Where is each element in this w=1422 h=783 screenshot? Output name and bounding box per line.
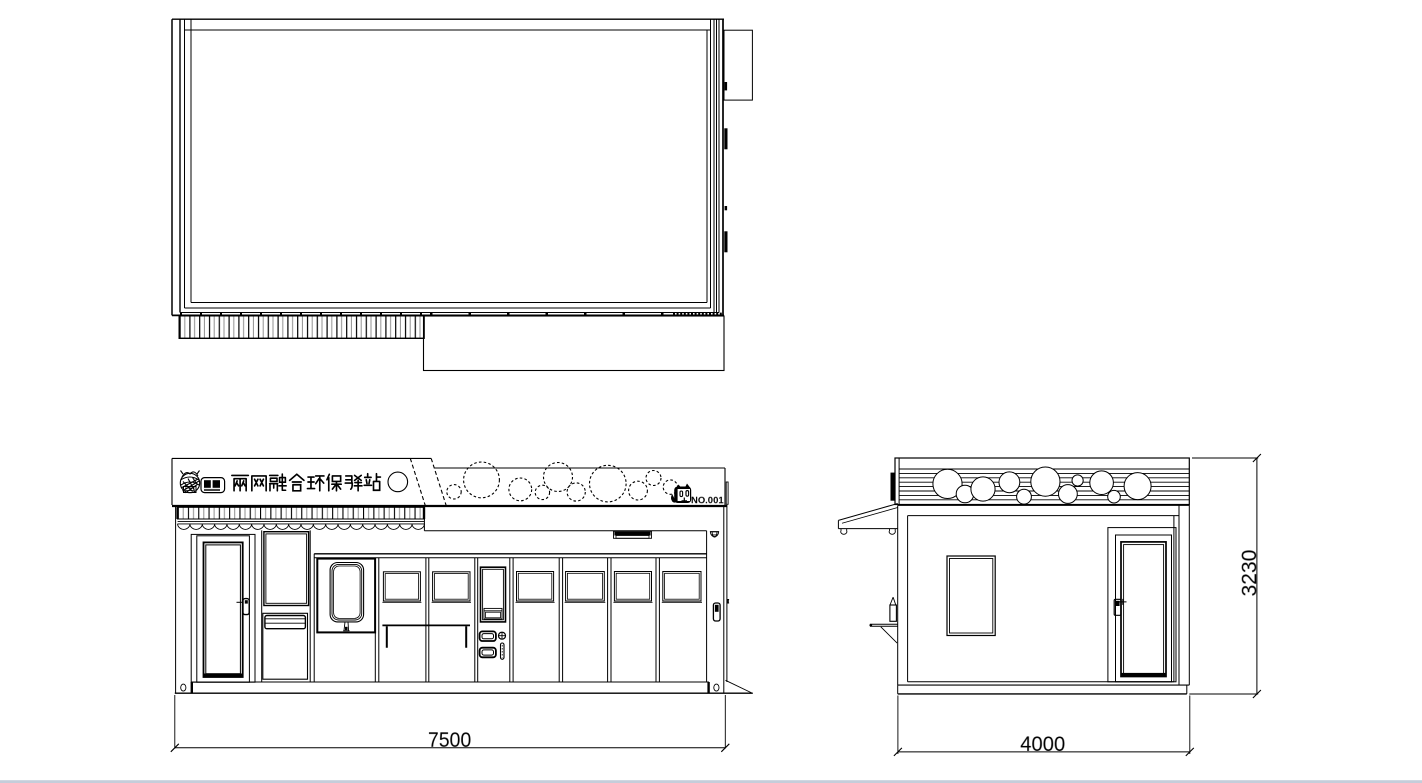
svg-text:3230: 3230 — [1237, 549, 1261, 596]
svg-text:NO.001: NO.001 — [691, 495, 724, 506]
svg-text:4000: 4000 — [1020, 732, 1065, 756]
svg-text:7500: 7500 — [428, 728, 471, 752]
